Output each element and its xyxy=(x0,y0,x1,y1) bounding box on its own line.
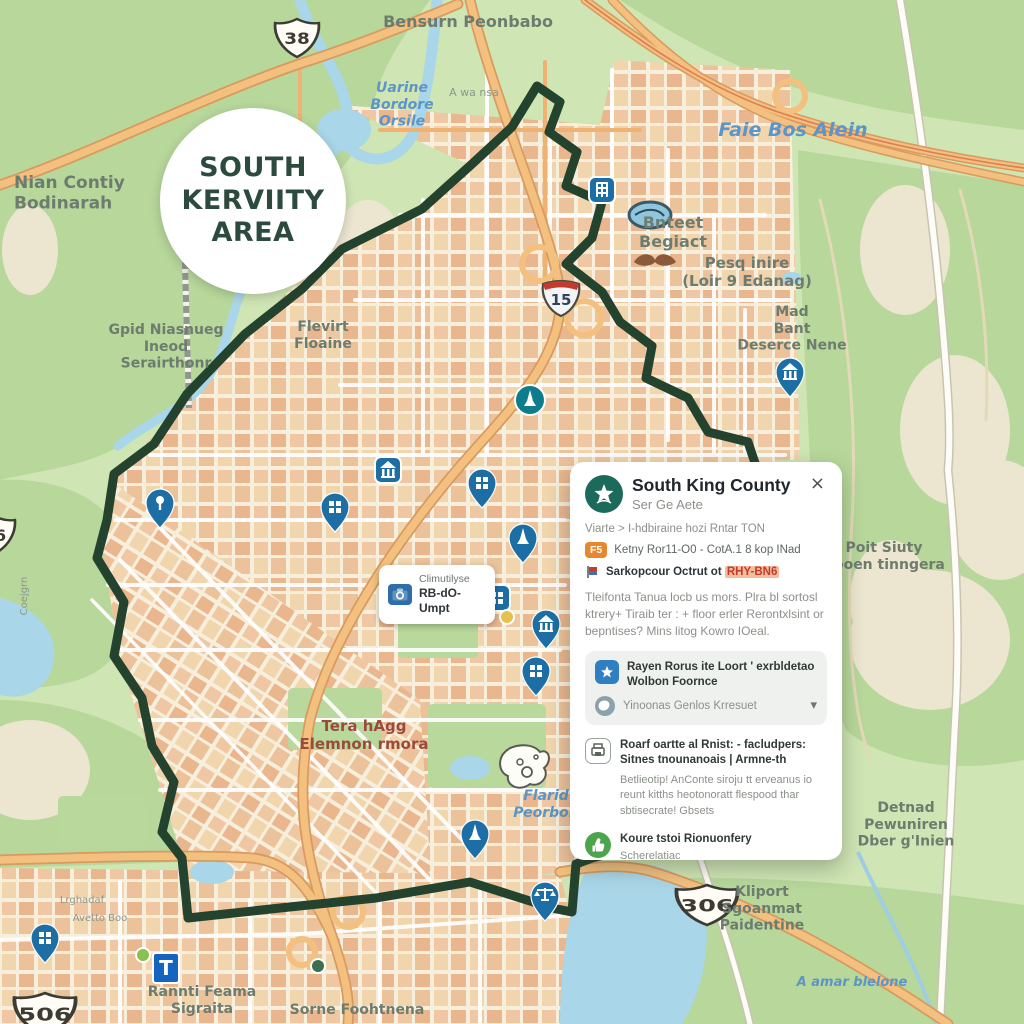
map-label: A wa nsa xyxy=(449,86,499,99)
district-info: Sarkopcour Octrut ot RHY-BN6 xyxy=(606,566,779,578)
route-shield-506: 506 xyxy=(14,993,75,1024)
map-label-line: Sorne Foohtnena xyxy=(290,1002,425,1018)
map-label: Nian ContiyBodinarah xyxy=(14,173,125,213)
svg-text:T: T xyxy=(159,956,173,980)
camera-icon xyxy=(388,584,412,605)
dot-pin[interactable] xyxy=(311,959,325,973)
status-title: Koure tstoi Rionuonfery xyxy=(620,832,752,848)
map-label-line: Bordore xyxy=(370,97,433,113)
map-label-line: Kliport xyxy=(735,884,789,900)
map-label-line: Avetto Boo xyxy=(73,913,128,924)
panel-description: Tleifonta Tanua locb us mors. Plra bl so… xyxy=(585,589,827,640)
map-label-line: Rannti Feama xyxy=(148,984,257,1000)
building-pin[interactable] xyxy=(589,177,615,203)
district-row: Sarkopcour Octrut ot RHY-BN6 xyxy=(585,565,827,579)
map-label-line: Pesq inire xyxy=(705,254,790,272)
map-label: Sorne Foohtnena xyxy=(290,1002,425,1018)
district-code: RHY-BN6 xyxy=(725,566,779,578)
map-label-line: (Loir 9 Edanag) xyxy=(682,272,812,290)
panel-subtitle: Ser Ge Aete xyxy=(632,497,790,512)
map-label-line: Sigraita xyxy=(171,1001,233,1017)
T-pin[interactable]: T xyxy=(153,953,179,983)
map-label-line: Elemnon rmora xyxy=(300,735,429,753)
selector-title-row: Rayen Rorus ite Loort ' exrbldetao Wolbo… xyxy=(595,660,817,690)
map-label-line: Serairthonr xyxy=(121,356,212,372)
map-label-line: A wa nsa xyxy=(449,86,499,99)
map-label-line: Detnad xyxy=(877,800,934,816)
map-label-line: Sgoanmat xyxy=(722,901,802,917)
selector-value-row: Yinoonas Genlos Krresuet ▾ xyxy=(595,696,817,716)
flag-icon xyxy=(585,565,599,579)
route-info: Ketny Ror11-O0 - CotA.1 8 kop INad xyxy=(614,544,800,556)
route-row: F5 Ketny Ror11-O0 - CotA.1 8 kop INad xyxy=(585,542,827,558)
map-label-line: Bodinarah xyxy=(14,193,112,213)
map-label-line: Flarid xyxy=(523,788,570,804)
map-label: BnteetBegiact xyxy=(639,213,707,251)
map-label-line: Orsile xyxy=(379,114,425,130)
thumbs-up-icon xyxy=(585,832,611,858)
map-label-line: Bensurn Peonbabo xyxy=(383,12,553,31)
svg-text:06: 06 xyxy=(0,526,6,545)
badge-line: KERVIITY xyxy=(181,185,324,217)
map-label-line: Dber g'Inien xyxy=(858,834,955,850)
navigation-icon xyxy=(595,660,619,684)
map: 381530650606 Bensurn PeonbaboNian Contiy… xyxy=(0,0,1024,1024)
map-label: Lrghadaf xyxy=(60,895,105,906)
map-label-line: Poit Siuty xyxy=(846,540,923,556)
map-label: Faie Bos Alein xyxy=(718,119,867,141)
info-label-line1: Climutilyse xyxy=(419,573,486,586)
map-label-line: Deserce Nene xyxy=(737,338,846,354)
map-label-line: Floaine xyxy=(294,336,352,352)
map-label: FlevirtFloaine xyxy=(294,319,352,352)
svg-text:38: 38 xyxy=(284,30,310,49)
svg-text:15: 15 xyxy=(551,291,572,309)
map-label-line: Bant xyxy=(774,321,811,337)
info-label-line2: RB-dO-Umpt xyxy=(419,586,486,616)
map-canvas[interactable]: 381530650606 Bensurn PeonbaboNian Contiy… xyxy=(0,0,1024,1024)
map-label-line: Ineod xyxy=(144,339,188,355)
map-label-line: Nian Contiy xyxy=(14,173,125,193)
map-label-line: A amar blelone xyxy=(796,975,908,990)
selector-title: Rayen Rorus ite Loort ' exrbldetao Wolbo… xyxy=(627,660,817,690)
map-label-line: Uarine xyxy=(376,80,428,96)
map-label-line: Gpid Niasnueg xyxy=(109,322,224,338)
map-label-line: Bnteet xyxy=(643,213,704,232)
map-label-line: Mad xyxy=(775,304,808,320)
area-badge: SOUTH KERVIITY AREA xyxy=(160,108,346,294)
globe-icon xyxy=(595,696,615,716)
panel-title: South King County xyxy=(632,476,790,495)
map-label-line: Faie Bos Alein xyxy=(718,119,867,141)
map-label-line: Begiact xyxy=(639,232,707,251)
printer-icon xyxy=(585,738,611,764)
map-label-line: Flevirt xyxy=(297,319,349,335)
status-subtitle: Scherelatiac xyxy=(620,850,752,860)
selector-value: Yinoonas Genlos Krresuet xyxy=(623,700,757,712)
section-transit: Roarf oartte al Rnist: - facludpers: Sit… xyxy=(585,738,827,819)
section-title: Roarf oartte al Rnist: - facludpers: Sit… xyxy=(620,738,827,769)
dot-pin[interactable] xyxy=(136,948,150,962)
badge-line: SOUTH xyxy=(199,152,307,184)
panel-titles: South King County Ser Ge Aete xyxy=(632,476,790,512)
chevron-down-icon[interactable]: ▾ xyxy=(810,698,817,713)
map-info-label-text: Climutilyse RB-dO-Umpt xyxy=(419,573,486,616)
map-label: Avetto Boo xyxy=(73,913,128,924)
map-label: Bensurn Peonbabo xyxy=(383,12,553,31)
panel-header: South King County Ser Ge Aete × xyxy=(585,475,827,513)
map-label-line: Coejgrn xyxy=(19,577,30,616)
location-selector[interactable]: Rayen Rorus ite Loort ' exrbldetao Wolbo… xyxy=(585,651,827,725)
close-icon[interactable]: × xyxy=(808,475,827,493)
service-area-logo-icon xyxy=(585,475,623,513)
map-label: Coejgrn xyxy=(19,577,30,616)
info-panel: South King County Ser Ge Aete × Viarte >… xyxy=(570,462,842,860)
svg-text:506: 506 xyxy=(18,1005,71,1024)
section-body: Betlieotip! AnConte siroju tt erveanus i… xyxy=(620,773,827,819)
map-label-line: Pewuniren xyxy=(864,817,948,833)
map-label: A amar blelone xyxy=(796,975,908,990)
bank-pin[interactable] xyxy=(375,457,401,483)
panel-meta-line: Viarte > I-hdbiraine hozi Rntar TON xyxy=(585,523,827,535)
district-label: Sarkopcour Octrut ot xyxy=(606,566,722,578)
badge-line: AREA xyxy=(211,217,294,249)
map-label-line: Peorbon xyxy=(513,805,579,821)
route-badge: F5 xyxy=(585,542,607,558)
section-status: Koure tstoi Rionuonfery Scherelatiac xyxy=(585,832,827,860)
map-info-label[interactable]: Climutilyse RB-dO-Umpt xyxy=(379,565,495,624)
section-status-body: Koure tstoi Rionuonfery Scherelatiac xyxy=(620,832,752,860)
section-transit-body: Roarf oartte al Rnist: - facludpers: Sit… xyxy=(620,738,827,819)
monument-pin[interactable] xyxy=(515,385,545,415)
map-label-line: Lrghadaf xyxy=(60,895,105,906)
map-label: UarineBordoreOrsile xyxy=(370,80,433,130)
map-label-line: Paidentine xyxy=(720,918,805,934)
dot-pin[interactable] xyxy=(500,610,514,624)
map-label-line: Tera hAgg xyxy=(322,717,407,735)
